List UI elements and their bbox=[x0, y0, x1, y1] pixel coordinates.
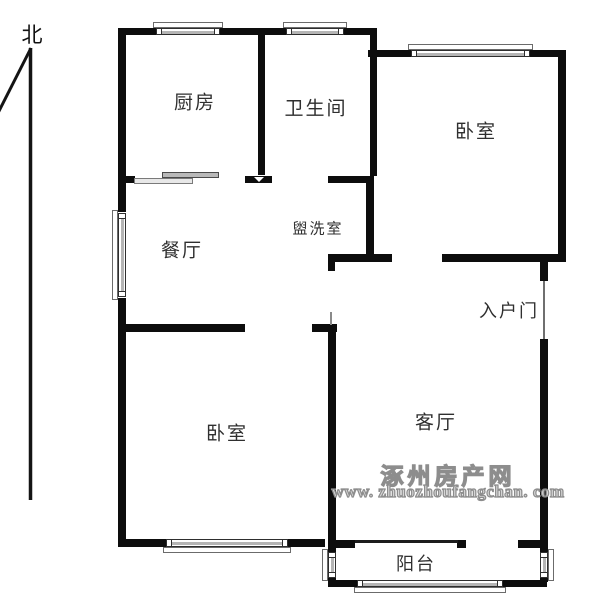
window-cap bbox=[357, 580, 363, 587]
balcony-window-left bbox=[328, 553, 336, 577]
window-sill bbox=[283, 22, 347, 28]
wall bbox=[328, 254, 392, 262]
window-sill bbox=[112, 210, 118, 300]
window-glass bbox=[157, 31, 219, 34]
window-cap bbox=[166, 539, 172, 547]
wall bbox=[457, 540, 466, 548]
window-sill bbox=[163, 547, 291, 553]
window-cap bbox=[540, 572, 548, 578]
room-label-entry-door: 入户门 bbox=[479, 297, 539, 323]
wall bbox=[118, 176, 135, 183]
wall bbox=[540, 262, 548, 281]
window-glass bbox=[121, 214, 124, 296]
wall bbox=[258, 34, 265, 175]
balcony-window bbox=[358, 580, 502, 587]
window-cap bbox=[286, 28, 292, 35]
entry-door-leaf bbox=[543, 281, 545, 339]
window-cap bbox=[411, 50, 417, 57]
kitchen-window bbox=[157, 28, 219, 35]
balcony-door-slider bbox=[355, 540, 458, 543]
wall bbox=[328, 540, 355, 548]
window-sill bbox=[153, 22, 223, 28]
room-label-bedroom-sw: 卧室 bbox=[206, 419, 248, 446]
wall bbox=[558, 57, 566, 260]
window-cap bbox=[118, 291, 126, 297]
window-cap bbox=[156, 28, 162, 35]
bathroom-window bbox=[287, 28, 343, 35]
window-sill bbox=[322, 549, 328, 581]
window-cap bbox=[282, 539, 288, 547]
bedroom-ne-window bbox=[412, 50, 529, 57]
wall bbox=[442, 254, 566, 262]
watermark-site-url: www. zhuozhoufangchan. com bbox=[331, 482, 564, 502]
north-label: 北 bbox=[22, 19, 43, 49]
window-cap bbox=[328, 572, 336, 578]
room-label-living: 客厅 bbox=[415, 408, 457, 435]
window-cap bbox=[338, 28, 344, 35]
wall bbox=[118, 324, 245, 332]
wall bbox=[366, 176, 374, 258]
kitchen-slider-lower bbox=[134, 178, 193, 184]
window-cap bbox=[118, 213, 126, 219]
floorplan-canvas: 北 厨房卫生间卧室餐厅盥洗室入户门卧室客厅阳台 涿州房产网 www. zhuoz… bbox=[0, 0, 602, 600]
room-label-balcony: 阳台 bbox=[396, 550, 436, 576]
window-cap bbox=[328, 552, 336, 558]
north-arrow-icon bbox=[0, 0, 60, 510]
window-glass bbox=[287, 31, 343, 34]
bedroom-sw-window bbox=[167, 539, 287, 547]
room-label-bathroom: 卫生间 bbox=[284, 94, 347, 121]
room-label-bedroom-ne: 卧室 bbox=[455, 117, 497, 144]
wall bbox=[118, 35, 126, 212]
hall-door-tick bbox=[330, 312, 332, 325]
wall bbox=[118, 298, 126, 547]
window-glass bbox=[358, 583, 502, 586]
window-cap bbox=[214, 28, 220, 35]
wall bbox=[518, 540, 548, 548]
window-glass bbox=[167, 542, 287, 545]
window-sill bbox=[408, 44, 533, 50]
room-label-washroom: 盥洗室 bbox=[292, 218, 343, 239]
window-sill bbox=[354, 587, 506, 593]
window-glass bbox=[412, 53, 529, 56]
dining-window bbox=[118, 214, 126, 296]
window-cap bbox=[540, 552, 548, 558]
window-cap bbox=[497, 580, 503, 587]
balcony-window-right bbox=[540, 553, 548, 577]
window-sill bbox=[548, 549, 554, 581]
wall bbox=[328, 262, 335, 271]
room-label-kitchen: 厨房 bbox=[174, 88, 216, 115]
window-cap bbox=[524, 50, 530, 57]
door-stop-arrow bbox=[254, 177, 264, 182]
room-label-dining: 餐厅 bbox=[161, 236, 203, 263]
